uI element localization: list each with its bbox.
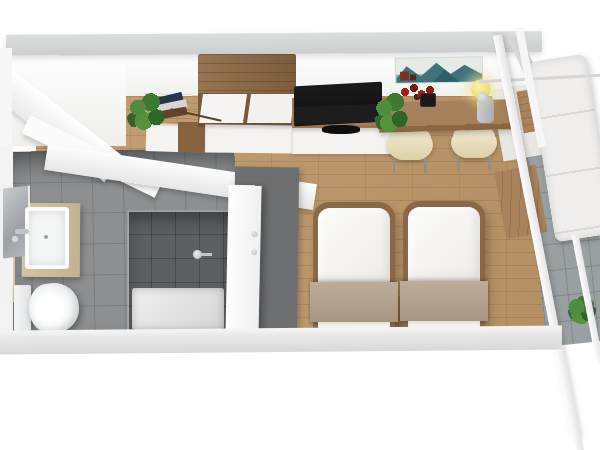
wardrobe-drawer (205, 125, 295, 154)
shower-tray (132, 288, 224, 330)
chair-legs (393, 158, 427, 173)
twin-bed-2 (403, 201, 485, 333)
bed-duvet (318, 208, 390, 282)
chair-seat (451, 132, 497, 158)
wall-picture (395, 56, 483, 84)
wardrobe-door (247, 94, 295, 123)
wardrobe-doors (198, 93, 296, 127)
potted-plant (126, 90, 166, 134)
door-handle (252, 231, 258, 237)
shower-glass (127, 212, 129, 330)
south-wall-top (0, 326, 562, 355)
door-roller (477, 92, 489, 104)
picture-building (410, 74, 416, 80)
shower-glass (127, 210, 229, 212)
twin-bed-1 (313, 202, 395, 334)
north-wall-top (6, 31, 542, 56)
shower-head-icon (193, 250, 202, 259)
bathroom-door (225, 185, 261, 339)
bed-runner (310, 282, 398, 322)
wardrobe-top (198, 54, 296, 94)
door-handle (251, 249, 257, 255)
chair-seat (387, 134, 433, 160)
wardrobe-door (199, 94, 247, 123)
faucet (15, 229, 29, 234)
entry-corner-wall (0, 48, 12, 156)
bed-duvet (408, 207, 480, 281)
telephone (420, 93, 436, 107)
bed-runner (400, 281, 488, 321)
picture-building (400, 72, 409, 81)
floorplan-scene (0, 0, 600, 450)
desk-chair-2 (451, 124, 497, 172)
tv-stand (322, 125, 360, 134)
basin-drain (44, 235, 48, 239)
faucet-knob (12, 236, 18, 242)
chair-legs (457, 156, 491, 171)
